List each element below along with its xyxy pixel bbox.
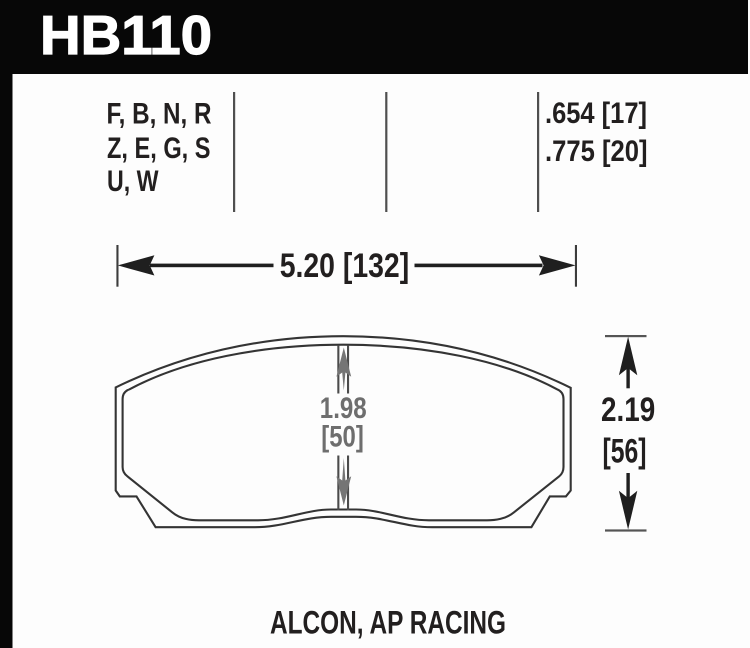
svg-text:[50]: [50] [321,420,364,453]
svg-text:HB110: HB110 [40,4,212,66]
svg-text:.654 [17]: .654 [17] [545,97,647,130]
svg-text:[56]: [56] [603,433,647,471]
svg-text:ALCON, AP RACING: ALCON, AP RACING [270,604,506,640]
svg-text:F, B, N, R: F, B, N, R [107,98,212,131]
svg-text:.775 [20]: .775 [20] [545,135,648,168]
svg-text:2.19: 2.19 [601,391,655,429]
svg-text:5.20 [132]: 5.20 [132] [280,247,410,285]
svg-text:Z, E, G, S: Z, E, G, S [107,132,211,165]
svg-text:U, W: U, W [107,165,159,198]
